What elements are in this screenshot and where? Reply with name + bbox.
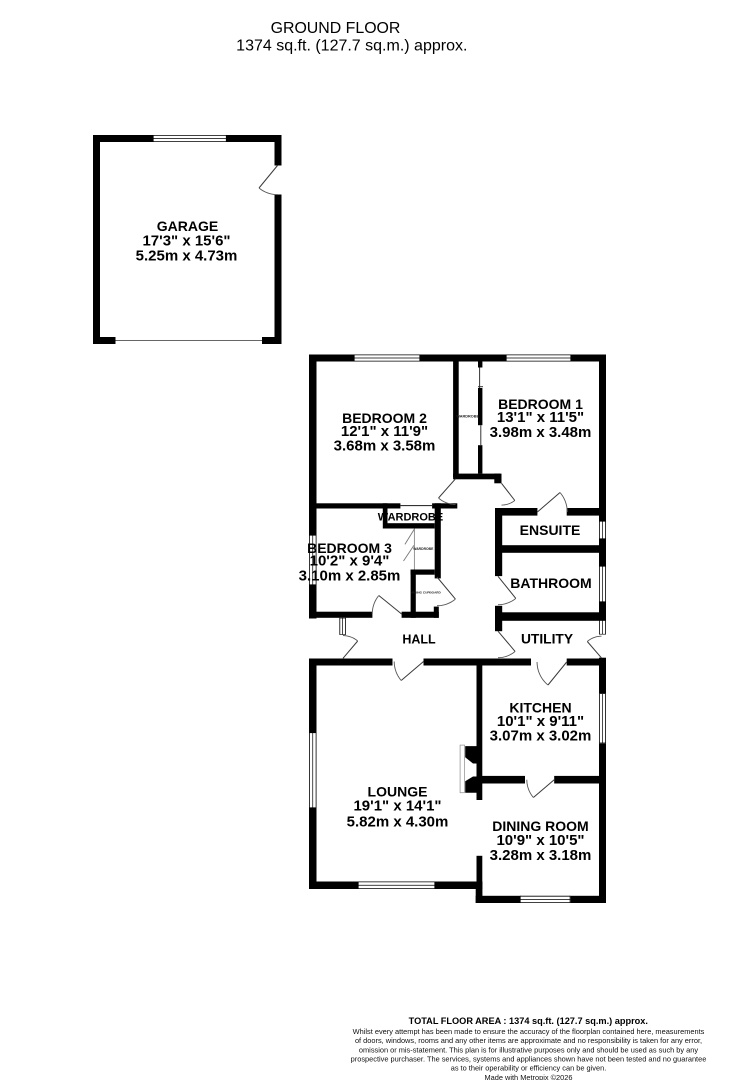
svg-text:3.07m x 3.02m: 3.07m x 3.02m: [490, 728, 592, 745]
svg-text:WARDROBE: WARDROBE: [413, 547, 434, 551]
svg-text:GROUND FLOOR: GROUND FLOOR: [271, 20, 401, 37]
svg-text:as to their operability or eff: as to their operability or efficiency ca…: [451, 1064, 607, 1073]
svg-text:WARDROBE: WARDROBE: [456, 415, 479, 419]
svg-text:HALL: HALL: [402, 633, 436, 647]
svg-text:ENSUITE: ENSUITE: [520, 522, 581, 538]
svg-text:TOTAL FLOOR AREA : 1374 sq.ft.: TOTAL FLOOR AREA : 1374 sq.ft. (127.7 sq…: [409, 1016, 648, 1026]
svg-text:3.68m x 3.58m: 3.68m x 3.58m: [334, 438, 436, 455]
svg-text:Made with Metropix ©2026: Made with Metropix ©2026: [484, 1073, 572, 1080]
svg-text:WARDROBE: WARDROBE: [378, 512, 443, 524]
svg-text:3.10m x 2.85m: 3.10m x 2.85m: [299, 568, 401, 585]
svg-text:prospective purchaser. The ser: prospective purchaser. The services, sys…: [351, 1055, 707, 1064]
svg-text:3.98m x 3.48m: 3.98m x 3.48m: [490, 424, 592, 441]
svg-text:5.82m x 4.30m: 5.82m x 4.30m: [347, 813, 449, 830]
svg-text:BATHROOM: BATHROOM: [510, 575, 591, 591]
svg-text:1374 sq.ft. (127.7 sq.m.) appr: 1374 sq.ft. (127.7 sq.m.) approx.: [236, 37, 467, 54]
svg-text:19'1" x 14'1": 19'1" x 14'1": [353, 798, 441, 815]
svg-text:of doors, windows, rooms and a: of doors, windows, rooms and any other i…: [355, 1036, 702, 1045]
svg-text:omission or mis-statement. Thi: omission or mis-statement. This plan is …: [359, 1045, 698, 1054]
svg-text:UTILITY: UTILITY: [521, 631, 573, 646]
svg-text:3.28m x 3.18m: 3.28m x 3.18m: [490, 847, 592, 864]
svg-text:AIRING CUPBOARD: AIRING CUPBOARD: [411, 590, 441, 594]
svg-text:Whilst every attempt has been: Whilst every attempt has been made to en…: [353, 1027, 705, 1036]
svg-text:5.25m x 4.73m: 5.25m x 4.73m: [136, 247, 238, 264]
